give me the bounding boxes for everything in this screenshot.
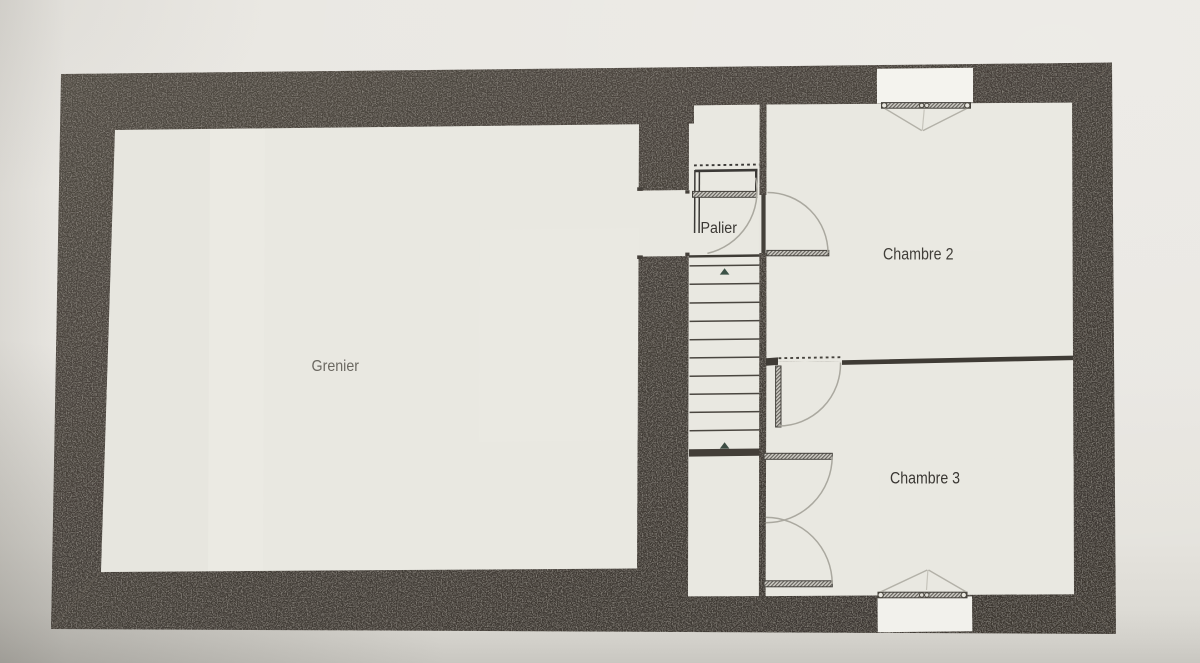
svg-text:Grenier: Grenier [312,358,360,375]
svg-text:Chambre 2: Chambre 2 [883,245,954,264]
svg-text:Palier: Palier [701,220,738,237]
svg-text:Chambre 3: Chambre 3 [890,469,960,488]
